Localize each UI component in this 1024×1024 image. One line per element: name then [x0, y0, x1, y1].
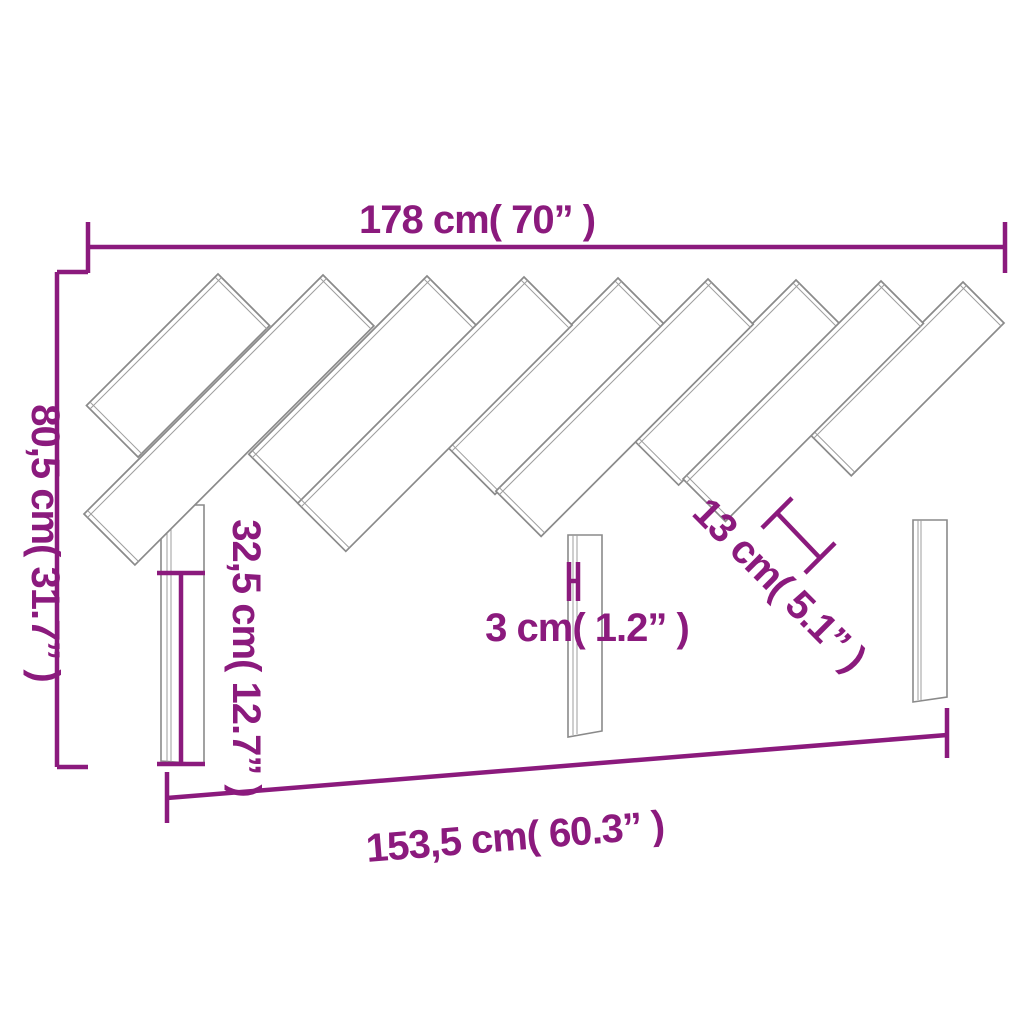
dimension-label-total-height: 80,5 cm( 31.7” ) — [23, 404, 67, 682]
dimension-legs-span-width: 153,5 cm( 60.3” ) — [167, 708, 947, 871]
dimension-line — [777, 513, 820, 558]
dimension-label-board-thickness: 3 cm( 1.2” ) — [485, 606, 689, 650]
dimension-label-leg-height: 32,5 cm( 12.7” ) — [224, 519, 268, 797]
headboard-dimension-diagram: 178 cm( 70” ) 80,5 cm( 31.7” ) 32,5 cm( … — [0, 0, 1024, 1024]
dimension-line — [167, 735, 947, 798]
headboard-drawing — [84, 274, 1004, 764]
dimension-label-total-width: 178 cm( 70” ) — [359, 198, 595, 242]
dimension-slat-width: 13 cm( 5.1” ) — [684, 490, 874, 680]
slats — [84, 274, 1004, 565]
dimension-total-width: 178 cm( 70” ) — [88, 198, 1005, 273]
dimension-total-height: 80,5 cm( 31.7” ) — [23, 272, 88, 767]
dimension-label-legs-span-width: 153,5 cm( 60.3” ) — [364, 803, 665, 871]
